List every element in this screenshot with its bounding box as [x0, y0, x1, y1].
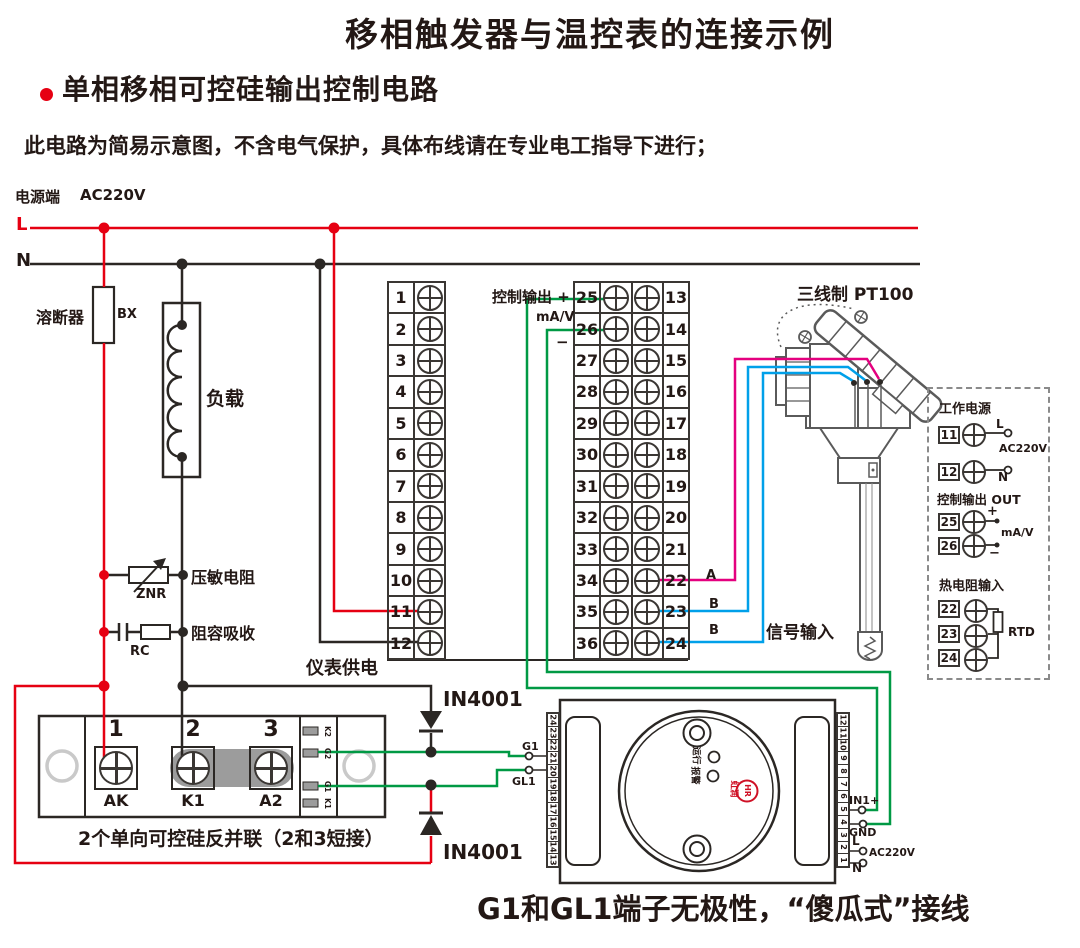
- terminal-number: 3: [389, 346, 415, 375]
- scr-terminal-2-number: 2: [172, 717, 214, 742]
- screw-icon: [417, 316, 443, 342]
- terminal-cell: [415, 472, 444, 501]
- terminal-cell: [415, 346, 444, 375]
- terminal-number: 33: [575, 534, 601, 563]
- screw-icon: [634, 316, 660, 342]
- alarm-label: 报警: [690, 766, 703, 784]
- terminal-cell: [415, 314, 444, 343]
- panel-rtd-label: RTD: [1008, 625, 1035, 639]
- strip-terminal: 15: [548, 829, 558, 842]
- diode-top-label: IN4001: [443, 687, 523, 711]
- screw-icon: [417, 285, 443, 311]
- panel-n-label: N: [998, 470, 1008, 484]
- terminal-cell: [631, 314, 663, 343]
- terminal-cell: [601, 314, 631, 343]
- main-block-right: 2513261427152816291730183119322033213422…: [573, 281, 690, 660]
- line-l-label: L: [16, 214, 27, 235]
- wire-a-label: A: [706, 568, 716, 583]
- screw-icon: [962, 534, 986, 558]
- panel-terminal-25: 25: [938, 513, 960, 531]
- gl1-label: GL1: [512, 775, 536, 788]
- screw-icon: [964, 648, 988, 672]
- screw-icon: [417, 379, 443, 405]
- terminal-number: 23: [662, 597, 688, 626]
- diode-bottom-label: IN4001: [443, 840, 523, 864]
- strip-terminal: 4: [838, 816, 848, 829]
- terminal-number: 11: [389, 597, 415, 626]
- strip-number: 17: [549, 804, 557, 815]
- panel-terminal-11: 11: [938, 426, 960, 444]
- wire-b1-label: B: [709, 597, 719, 612]
- strip-number: 22: [549, 740, 557, 751]
- fuse-code-label: BX: [117, 307, 137, 322]
- terminal-number: 31: [575, 472, 601, 501]
- panel-terminal-26: 26: [938, 537, 960, 555]
- screw-icon: [603, 442, 629, 468]
- terminal-cell: [601, 566, 631, 595]
- screw-icon: [417, 599, 443, 625]
- screw-icon: [634, 630, 660, 656]
- strip-number: 8: [839, 768, 847, 774]
- run-led-icon: [709, 752, 720, 763]
- panel-terminal-12: 12: [938, 463, 960, 481]
- scr-pin-k2-label: K2: [323, 726, 332, 737]
- terminal-row: 2513: [575, 283, 688, 314]
- strip-terminal: 9: [838, 752, 848, 765]
- terminal-number: 28: [575, 377, 601, 406]
- terminal-cell: [631, 597, 663, 626]
- terminal-number: 21: [662, 534, 688, 563]
- strip-terminal: 18: [548, 791, 558, 804]
- screw-icon: [176, 751, 210, 785]
- screw-icon: [254, 751, 288, 785]
- strip-number: 19: [549, 778, 557, 789]
- terminal-number: 27: [575, 346, 601, 375]
- strip-terminal: 6: [838, 791, 848, 804]
- terminal-number: 29: [575, 409, 601, 438]
- page-title: 移相触发器与温控表的连接示例: [100, 8, 1080, 56]
- power-voltage-label: AC220V: [80, 186, 146, 204]
- terminal-row: 3321: [575, 534, 688, 565]
- brand-label: 虹润: [729, 780, 741, 797]
- screw-icon: [417, 536, 443, 562]
- strip-terminal: 7: [838, 778, 848, 791]
- screw-icon: [603, 568, 629, 594]
- terminal-row: 3018: [575, 440, 688, 471]
- panel-ac-label: AC220V: [999, 442, 1047, 455]
- strip-terminal: 12: [838, 714, 848, 727]
- screw-icon: [603, 285, 629, 311]
- strip-terminal: 13: [548, 854, 558, 866]
- varistor-code-label: ZNR: [136, 587, 166, 602]
- screw-icon: [603, 316, 629, 342]
- screw-icon: [603, 348, 629, 374]
- terminal-row: 2614: [575, 314, 688, 345]
- strip-number: 14: [549, 842, 557, 853]
- panel-terminal-24: 24: [938, 649, 960, 667]
- terminal-cell: [631, 440, 663, 469]
- strip-number: 1: [839, 857, 847, 863]
- strip-number: 15: [549, 829, 557, 840]
- strip-number: 5: [839, 806, 847, 812]
- terminal-number: 24: [662, 629, 688, 658]
- screw-icon: [417, 442, 443, 468]
- fuse-label: 溶断器: [36, 304, 84, 328]
- strip-terminal: 24: [548, 714, 558, 727]
- terminal-row: 12: [389, 629, 444, 658]
- terminal-cell: [415, 534, 444, 563]
- trigger-n-label: N: [852, 861, 862, 875]
- terminal-row: 3119: [575, 472, 688, 503]
- strip-number: 10: [839, 740, 847, 751]
- rc-label: 阻容吸收: [191, 620, 255, 644]
- screw-icon: [603, 599, 629, 625]
- screw-icon: [417, 410, 443, 436]
- fuse-component: [93, 287, 114, 343]
- strip-terminal: 11: [838, 727, 848, 740]
- screw-icon: [417, 505, 443, 531]
- terminal-cell: [631, 283, 663, 312]
- terminal-number: 22: [662, 566, 688, 595]
- terminal-cell: [631, 409, 663, 438]
- screw-icon: [417, 630, 443, 656]
- terminal-cell: [415, 597, 444, 626]
- strip-number: 9: [839, 755, 847, 761]
- screw-icon: [964, 624, 988, 648]
- strip-terminal: 16: [548, 816, 558, 829]
- terminal-row: 10: [389, 566, 444, 597]
- varistor-label: 压敏电阻: [191, 564, 255, 588]
- trigger-right-strip: 121110987654321: [836, 712, 850, 868]
- screw-icon: [603, 536, 629, 562]
- terminal-cell: [601, 440, 631, 469]
- scr-terminal-1-number: 1: [95, 717, 137, 742]
- strip-terminal: 10: [838, 740, 848, 753]
- terminal-number: 5: [389, 409, 415, 438]
- scr-terminal-3-number: 3: [250, 717, 292, 742]
- strip-number: 18: [549, 791, 557, 802]
- rc-code-label: RC: [130, 644, 150, 659]
- terminal-number: 25: [575, 283, 601, 312]
- terminal-row: 2816: [575, 377, 688, 408]
- screw-icon: [417, 568, 443, 594]
- terminal-row: 4: [389, 377, 444, 408]
- terminal-row: 2715: [575, 346, 688, 377]
- terminal-number: 18: [662, 440, 688, 469]
- trigger-module: [560, 700, 835, 883]
- terminal-row: 3220: [575, 503, 688, 534]
- panel-rtd-title: 热电阻输入: [939, 575, 1004, 594]
- terminal-row: 3: [389, 346, 444, 377]
- scr-pin-g1-label: G1: [323, 781, 332, 792]
- working-power-title: 工作电源: [939, 398, 991, 417]
- panel-plus-label: +: [987, 504, 998, 519]
- strip-terminal: 20: [548, 765, 558, 778]
- strip-terminal: 3: [838, 829, 848, 842]
- terminal-cell: [415, 283, 444, 312]
- terminal-number: 17: [662, 409, 688, 438]
- terminal-cell: [415, 629, 444, 658]
- safety-note: 此电路为简易示意图，不含电气保护，具体布线请在专业电工指导下进行；: [24, 130, 717, 160]
- scr-ak-label: AK: [95, 791, 137, 810]
- screw-icon: [417, 348, 443, 374]
- strip-number: 4: [839, 819, 847, 825]
- terminal-cell: [601, 629, 631, 658]
- screw-icon: [603, 410, 629, 436]
- run-label: 运行: [691, 746, 704, 764]
- screw-icon: [962, 460, 986, 484]
- terminal-cell: [415, 409, 444, 438]
- strip-terminal: 23: [548, 727, 558, 740]
- main-block-left: 123456789101112: [387, 281, 446, 660]
- screw-icon: [603, 630, 629, 656]
- terminal-cell: [631, 566, 663, 595]
- screw-icon: [99, 751, 133, 785]
- terminal-number: 14: [662, 314, 688, 343]
- strip-number: 3: [839, 832, 847, 838]
- terminal-cell: [631, 346, 663, 375]
- strip-terminal: 2: [838, 842, 848, 855]
- terminal-number: 2: [389, 314, 415, 343]
- terminal-cell: [631, 503, 663, 532]
- panel-minus-label: −: [989, 546, 1000, 561]
- strip-number: 7: [839, 781, 847, 787]
- line-n-label: N: [16, 250, 31, 271]
- terminal-number: 12: [389, 629, 415, 658]
- terminal-number: 1: [389, 283, 415, 312]
- scr-caption: 2个单向可控硅反并联（2和3短接）: [78, 824, 384, 851]
- terminal-number: 6: [389, 440, 415, 469]
- panel-ctrl-out-title: 控制输出 OUT: [937, 489, 1021, 508]
- terminal-cell: [631, 534, 663, 563]
- terminal-row: 3523: [575, 597, 688, 628]
- instrument-terminal-panel: 工作电源 11 L AC220V 12 N 控制输出 OUT 25 + mA/V…: [927, 387, 1050, 680]
- scr-pin-k1-label: K1: [323, 798, 332, 809]
- terminal-row: 9: [389, 534, 444, 565]
- diode-top: [419, 711, 443, 731]
- terminal-cell: [601, 377, 631, 406]
- strip-number: 12: [839, 714, 847, 725]
- terminal-number: 13: [662, 283, 688, 312]
- terminal-row: 3624: [575, 629, 688, 658]
- screw-icon: [634, 568, 660, 594]
- in1-label: IN1+: [849, 794, 879, 807]
- terminal-cell: [631, 472, 663, 501]
- terminal-row: 1: [389, 283, 444, 314]
- strip-terminal: 8: [838, 765, 848, 778]
- strip-number: 16: [549, 816, 557, 827]
- screw-icon: [634, 599, 660, 625]
- terminal-cell: [601, 409, 631, 438]
- terminal-number: 26: [575, 314, 601, 343]
- screw-icon: [962, 510, 986, 534]
- screw-icon: [634, 410, 660, 436]
- terminal-row: 6: [389, 440, 444, 471]
- panel-terminal-22: 22: [938, 600, 960, 618]
- terminal-number: 35: [575, 597, 601, 626]
- terminal-number: 32: [575, 503, 601, 532]
- meter-power-label: 仪表供电: [306, 654, 378, 680]
- load-label: 负载: [206, 384, 244, 411]
- signal-input-label: 信号输入: [766, 618, 834, 643]
- terminal-number: 7: [389, 472, 415, 501]
- trigger-left-strip: 242322212019181716151413: [546, 712, 560, 868]
- section-subtitle: 单相移相可控硅输出控制电路: [62, 68, 439, 108]
- terminal-number: 9: [389, 534, 415, 563]
- terminal-row: 3422: [575, 566, 688, 597]
- screw-icon: [603, 505, 629, 531]
- terminal-cell: [415, 503, 444, 532]
- wire-b2-label: B: [709, 623, 719, 638]
- terminal-cell: [415, 566, 444, 595]
- strip-terminal: 5: [838, 803, 848, 816]
- strip-number: 21: [549, 753, 557, 764]
- scr-pin-g2-label: G2: [323, 748, 332, 759]
- terminal-cell: [415, 377, 444, 406]
- strip-number: 6: [839, 794, 847, 800]
- strip-number: 23: [549, 727, 557, 738]
- panel-terminal-23: 23: [938, 625, 960, 643]
- strip-terminal: 22: [548, 740, 558, 753]
- scr-k1-label: K1: [172, 791, 214, 810]
- screw-icon: [634, 285, 660, 311]
- strip-terminal: 1: [838, 854, 848, 866]
- strip-terminal: 14: [548, 842, 558, 855]
- terminal-number: 15: [662, 346, 688, 375]
- terminal-cell: [601, 503, 631, 532]
- strip-number: 11: [839, 727, 847, 738]
- rc-snubber-component: [119, 623, 170, 641]
- strip-number: 20: [549, 765, 557, 776]
- terminal-number: 4: [389, 377, 415, 406]
- screw-icon: [603, 473, 629, 499]
- terminal-number: 8: [389, 503, 415, 532]
- alarm-led-icon: [708, 771, 719, 782]
- scr-a2-label: A2: [250, 791, 292, 810]
- bullet-icon: [40, 88, 53, 101]
- diode-bottom: [419, 813, 443, 835]
- terminal-number: 34: [575, 566, 601, 595]
- terminal-number: 36: [575, 629, 601, 658]
- power-side-label: 电源端: [15, 186, 60, 207]
- terminal-cell: [601, 597, 631, 626]
- g1-label: G1: [522, 740, 539, 753]
- terminal-row: 11: [389, 597, 444, 628]
- terminal-number: 20: [662, 503, 688, 532]
- strip-terminal: 17: [548, 803, 558, 816]
- strip-terminal: 21: [548, 752, 558, 765]
- terminal-cell: [631, 629, 663, 658]
- mav-label: mA/V: [536, 310, 574, 325]
- screw-icon: [417, 473, 443, 499]
- terminal-cell: [601, 283, 631, 312]
- panel-mav-label: mA/V: [1001, 526, 1034, 539]
- screw-icon: [634, 348, 660, 374]
- screw-icon: [634, 505, 660, 531]
- strip-number: 2: [839, 845, 847, 851]
- screw-icon: [603, 379, 629, 405]
- terminal-cell: [415, 440, 444, 469]
- terminal-row: 8: [389, 503, 444, 534]
- terminal-row: 5: [389, 409, 444, 440]
- terminal-number: 30: [575, 440, 601, 469]
- terminal-row: 2: [389, 314, 444, 345]
- terminal-cell: [631, 377, 663, 406]
- terminal-cell: [601, 346, 631, 375]
- terminal-row: 7: [389, 472, 444, 503]
- terminal-number: 10: [389, 566, 415, 595]
- screw-icon: [964, 599, 988, 623]
- terminal-row: 2917: [575, 409, 688, 440]
- strip-terminal: 19: [548, 778, 558, 791]
- ctrl-out-label: 控制输出 +: [492, 286, 570, 307]
- screw-icon: [634, 442, 660, 468]
- screw-icon: [962, 423, 986, 447]
- strip-number: 24: [549, 714, 557, 725]
- terminal-cell: [601, 472, 631, 501]
- minus-label: −: [556, 333, 569, 351]
- sensor-title: 三线制 PT100: [797, 280, 913, 305]
- trigger-l-label: L: [852, 834, 860, 848]
- screw-icon: [634, 536, 660, 562]
- terminal-cell: [601, 534, 631, 563]
- trigger-ac-label: AC220V: [869, 847, 915, 859]
- screw-icon: [634, 473, 660, 499]
- brand-mark-label: HR: [743, 784, 752, 797]
- panel-l-label: L: [996, 417, 1004, 431]
- footer-note: G1和GL1端子无极性，“傻瓜式”接线: [477, 886, 970, 928]
- terminal-number: 16: [662, 377, 688, 406]
- screw-icon: [634, 379, 660, 405]
- terminal-number: 19: [662, 472, 688, 501]
- strip-number: 13: [549, 855, 557, 866]
